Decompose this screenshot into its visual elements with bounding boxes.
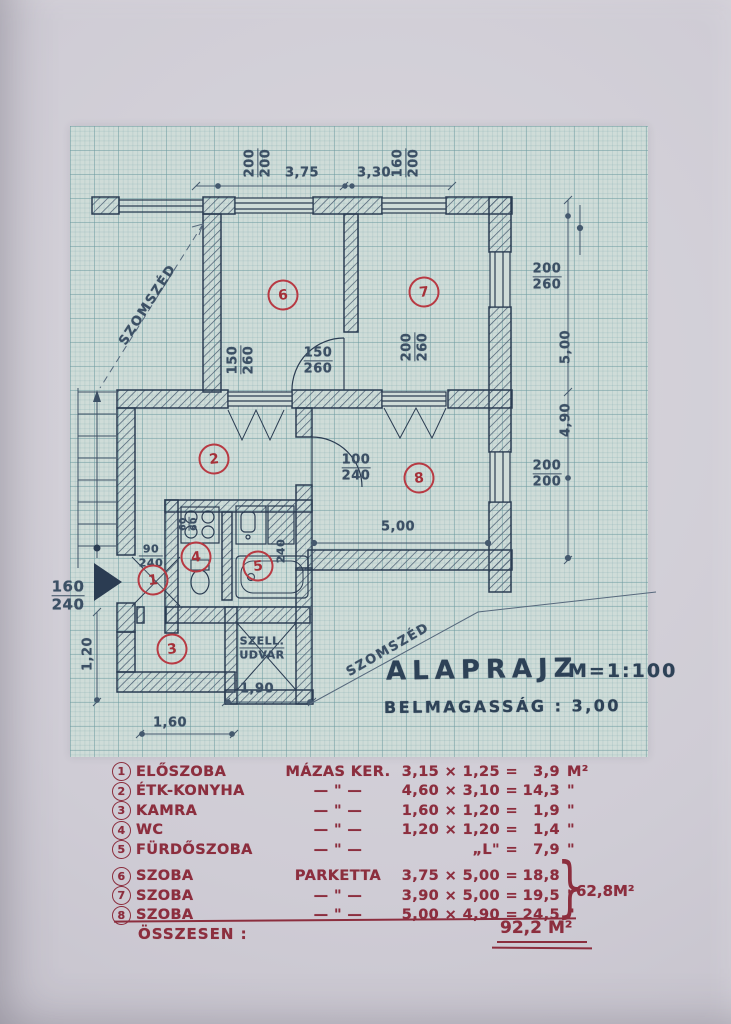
stairs (78, 388, 116, 568)
dim-den: 260 (533, 276, 562, 292)
area-calculation: 3,75 × 5,00 = (394, 868, 518, 884)
vent-court-line1: SZELL. (240, 635, 285, 647)
legend-row: 1 ELŐSZOBA MÁZAS KER. 3,15 × 1,25 = 3,9 … (112, 762, 597, 782)
legend-row: 3 KAMRA — " — 1,60 × 1,20 = 1,9 " (112, 801, 597, 821)
floor-material: — " — (282, 888, 394, 904)
dim-right-height-bottom: 4,90 (559, 403, 574, 437)
dim-room6-door: 150 260 (304, 346, 333, 375)
area-value: 1,4 (518, 822, 560, 838)
floor-material: MÁZAS KER. (282, 764, 394, 780)
dim-num: 200 (533, 262, 562, 276)
area-value: 19,5 (518, 888, 560, 904)
area-calculation: 3,90 × 5,00 = (394, 888, 518, 904)
plan-subtitle: BELMAGASSÁG : 3,00 (384, 696, 621, 717)
dim-num: 160 (52, 579, 85, 595)
dim-right-window-top: 200 260 (533, 262, 562, 291)
area-calculation: „L" = (394, 842, 518, 858)
dim-den: 200 (257, 149, 273, 178)
dim-room6-width: 3,75 (285, 166, 319, 181)
area-calculation: 4,60 × 3,10 = (394, 783, 518, 799)
dim-num: 200 (400, 333, 414, 362)
room-number-badge: 5 (112, 840, 131, 859)
room-number-badge: 2 (112, 782, 131, 801)
floor-material: PARKETTA (282, 868, 394, 884)
dim-room7-window: 200 260 (400, 333, 429, 362)
dim-top-window-right: 160 200 (391, 149, 420, 178)
room-number-badge: 7 (112, 886, 131, 905)
floor-material: — " — (282, 822, 394, 838)
area-calculation: 3,15 × 1,25 = (394, 764, 518, 780)
dim-court-width: 1,90 (240, 682, 274, 697)
legend-row: 2 ÉTK-KONYHA — " — 4,60 × 3,10 = 14,3 " (112, 782, 597, 802)
total-area: 92,2 M² (500, 918, 572, 938)
neighbor-wall-lines (119, 200, 203, 212)
total-value: 92,2 (500, 918, 542, 938)
dim-room8-width: 5,00 (381, 520, 415, 535)
room-legend: 1 ELŐSZOBA MÁZAS KER. 3,15 × 1,25 = 3,9 … (112, 762, 597, 925)
dim-right-height-top: 5,00 (559, 330, 574, 364)
area-unit: M² (560, 764, 597, 780)
room-name: WC (136, 822, 282, 838)
room-name: KAMRA (136, 803, 282, 819)
dim-entry-door: 160 240 (52, 579, 85, 613)
dim-den: 200 (533, 473, 562, 489)
area-unit: " (560, 783, 597, 799)
dim-den: 240 (52, 595, 85, 613)
area-value: 7,9 (518, 842, 560, 858)
total-underline-1 (497, 941, 587, 943)
room-number-badge: 6 (112, 867, 131, 886)
dim-den: 260 (414, 333, 430, 362)
plan-scale: M=1:100 (568, 660, 677, 682)
rooms-subtotal: 62,8M² (576, 882, 635, 900)
area-unit: " (560, 822, 597, 838)
dim-top-window-left: 200 200 (243, 149, 272, 178)
dim-num: 150 (304, 346, 333, 360)
legend-row: 5 FÜRDŐSZOBA — " — „L" = 7,9 " (112, 840, 597, 860)
dim-bath-door: 240 (275, 539, 288, 563)
dim-num: 150 (226, 346, 240, 375)
dim-den: 60 (189, 517, 200, 531)
area-value: 3,9 (518, 764, 560, 780)
room-name: SZOBA (136, 868, 282, 884)
vent-court-line2: UDVAR (239, 647, 284, 661)
floor-material: — " — (282, 783, 394, 799)
legend-row: 7 SZOBA — " — 3,90 × 5,00 = 19,5 " (112, 886, 597, 906)
wc-bowl (191, 570, 209, 594)
dim-room7-width: 3,30 (357, 166, 391, 181)
room-number-badge: 3 (112, 801, 131, 820)
area-unit: " (560, 803, 597, 819)
floor-material: — " — (282, 842, 394, 858)
dim-num: 200 (243, 149, 257, 178)
dim-left-height: 1,20 (81, 637, 96, 671)
legend-row: 6 SZOBA PARKETTA 3,75 × 5,00 = 18,8 (112, 867, 597, 887)
dim-den: 260 (240, 346, 256, 375)
dim-den: 200 (405, 149, 421, 178)
dim-stove: 60 60 (180, 517, 201, 531)
dim-room8-door: 100 240 (342, 453, 371, 482)
legend-row: 4 WC — " — 1,20 × 1,20 = 1,4 " (112, 821, 597, 841)
room-number-badge: 1 (112, 762, 131, 781)
reference-lines (100, 224, 656, 704)
vent-court-label: SZELL. UDVAR (239, 635, 284, 660)
area-value: 18,8 (518, 868, 560, 884)
dim-den: 240 (342, 467, 371, 483)
dim-right-window-bottom: 200 200 (533, 459, 562, 488)
dim-room6-window: 150 260 (226, 346, 255, 375)
dim-num: 200 (533, 459, 562, 473)
photo-of-floor-plan: 200 200 3,75 3,30 160 200 200 260 5,00 4… (0, 0, 731, 1024)
room-name: SZOBA (136, 888, 282, 904)
area-value: 1,9 (518, 803, 560, 819)
dim-num: 160 (391, 149, 405, 178)
room-number-badge: 4 (112, 821, 131, 840)
room-name: ÉTK-KONYHA (136, 783, 282, 799)
dim-den: 260 (304, 360, 333, 376)
floor-material: — " — (282, 803, 394, 819)
plan-title: ALAPRAJZ (386, 653, 579, 686)
dim-num: 60 (180, 517, 189, 531)
area-calculation: 1,60 × 1,20 = (394, 803, 518, 819)
area-calculation: 1,20 × 1,20 = (394, 822, 518, 838)
dim-num: 100 (342, 453, 371, 467)
area-value: 14,3 (518, 783, 560, 799)
fixtures (181, 506, 308, 690)
entrance-arrow (94, 563, 122, 601)
room-name: ELŐSZOBA (136, 764, 282, 780)
room-name: FÜRDŐSZOBA (136, 842, 282, 858)
total-unit: M² (548, 918, 572, 938)
total-label: ÖSSZESEN : (138, 925, 248, 943)
dim-bottom-width: 1,60 (153, 716, 187, 731)
dim-num: 90 (143, 543, 159, 555)
